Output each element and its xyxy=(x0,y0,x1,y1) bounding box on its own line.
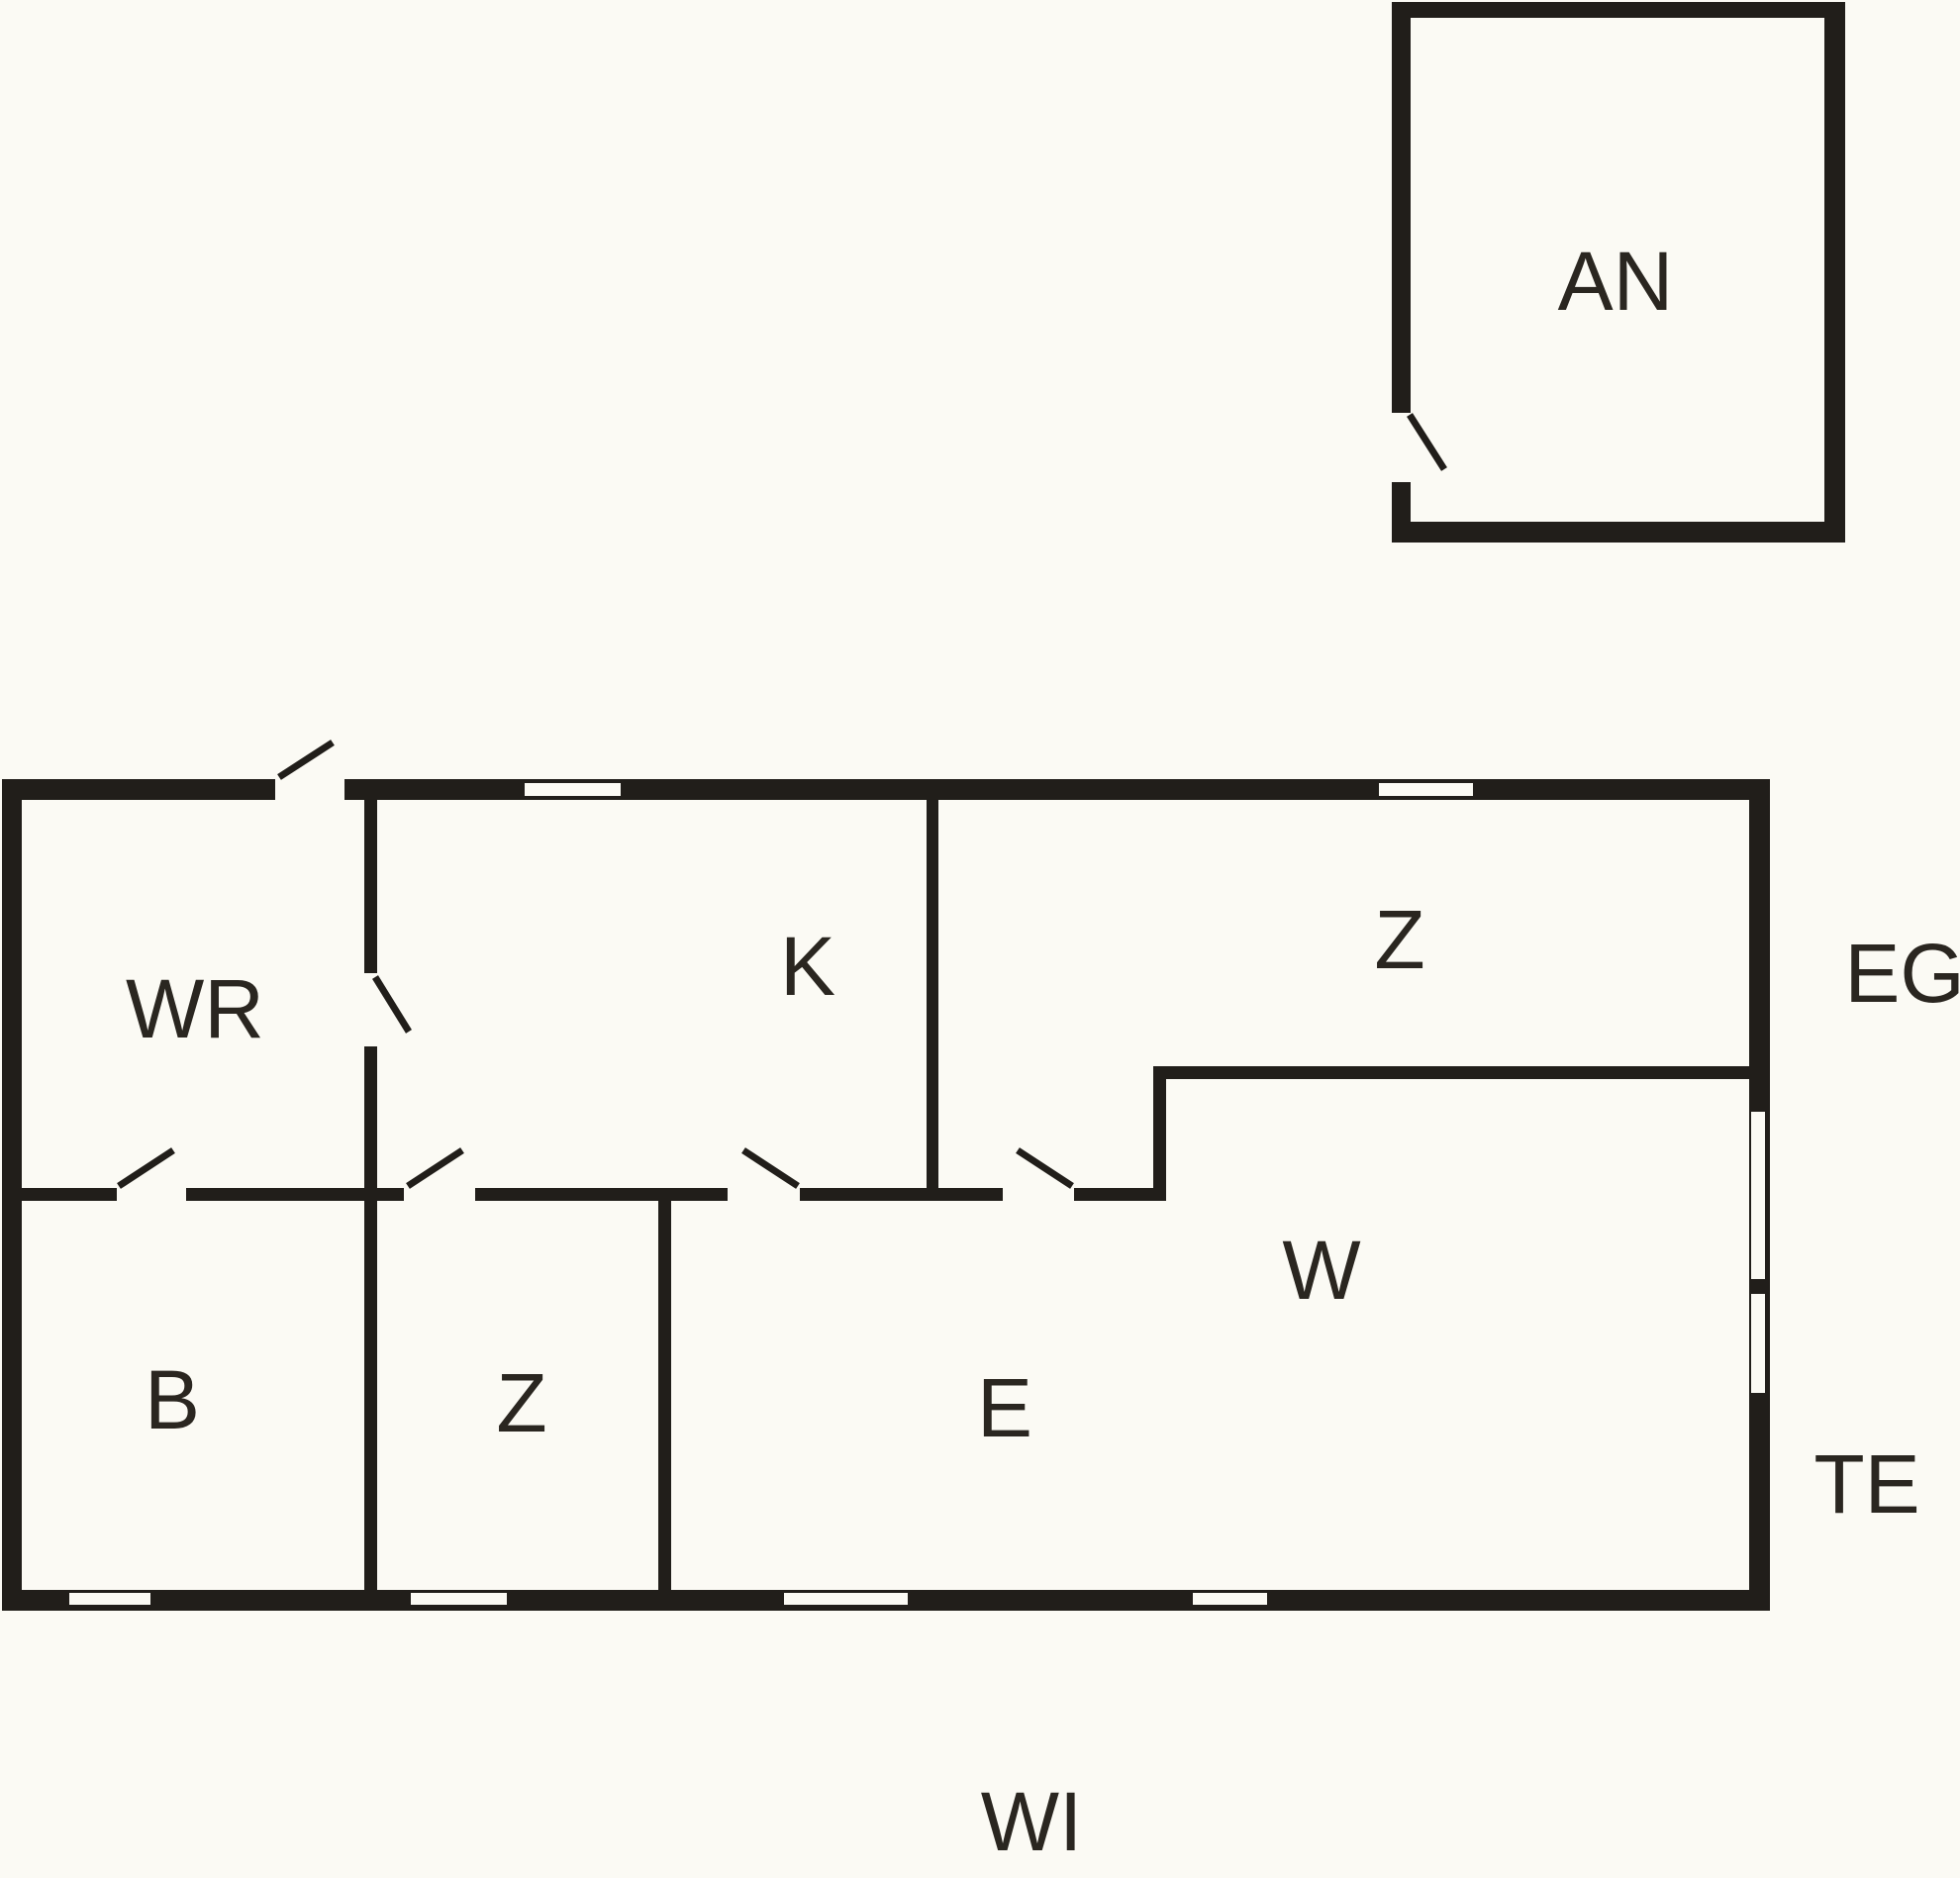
window-k-icon xyxy=(525,783,621,796)
window-b-icon xyxy=(69,1593,150,1605)
window-w-south-icon xyxy=(1193,1593,1267,1605)
main-building: WR K Z B Z E W xyxy=(2,742,1770,1611)
room-label-z-bottom: Z xyxy=(496,1356,546,1449)
window-e-icon xyxy=(784,1593,908,1605)
room-label-wr: WR xyxy=(126,962,264,1055)
annotation-wi: WI xyxy=(981,1775,1083,1868)
entrance-door-opening xyxy=(275,777,344,802)
corridor-wall-seg2 xyxy=(186,1188,404,1201)
annex-bottom-wall xyxy=(1392,522,1845,543)
window-z-top-icon xyxy=(1379,783,1473,796)
door-swing-wr-k-icon xyxy=(375,977,409,1032)
wall-z-e xyxy=(658,1201,671,1590)
corridor-wall-seg5 xyxy=(1074,1188,1166,1201)
room-label-b: B xyxy=(145,1353,200,1446)
corridor-wall-seg4 xyxy=(800,1188,1003,1201)
annex-right-wall xyxy=(1824,2,1845,543)
main-top-wall xyxy=(2,779,1770,800)
main-left-wall xyxy=(2,779,22,1611)
room-label-z-top: Z xyxy=(1374,893,1424,986)
room-label-an: AN xyxy=(1558,235,1674,328)
wall-wr-k-upper xyxy=(364,800,377,973)
window-w-east2-icon xyxy=(1751,1294,1765,1393)
floor-plan-canvas: AN xyxy=(0,0,1960,1878)
window-w-east1-icon xyxy=(1751,1112,1765,1279)
room-label-w: W xyxy=(1282,1224,1360,1317)
wall-k-z xyxy=(927,800,938,1201)
annotation-te: TE xyxy=(1813,1437,1919,1531)
window-z-bottom-icon xyxy=(411,1593,507,1605)
corridor-wall-seg1 xyxy=(22,1188,117,1201)
annex-top-wall xyxy=(1392,2,1845,18)
door-swing-k-icon xyxy=(743,1150,798,1186)
annotation-eg: EG xyxy=(1844,927,1960,1020)
floor-plan: AN xyxy=(0,0,1960,1878)
wall-wr-b-z-lower xyxy=(364,1046,377,1590)
room-label-k: K xyxy=(780,920,835,1013)
door-swing-z-bottom-icon xyxy=(408,1150,462,1186)
annex-door-opening xyxy=(1390,413,1413,482)
door-swing-z-top-icon xyxy=(1018,1150,1072,1186)
annex-building: AN xyxy=(1390,2,1845,543)
door-swing-b-icon xyxy=(119,1150,173,1186)
annex-door-swing-icon xyxy=(1410,415,1444,469)
corridor-wall-seg3 xyxy=(475,1188,728,1201)
entrance-door-swing-icon xyxy=(279,742,333,777)
wall-step-vertical xyxy=(1153,1066,1166,1201)
wall-z-w xyxy=(1153,1066,1749,1079)
room-label-e: E xyxy=(977,1361,1032,1454)
